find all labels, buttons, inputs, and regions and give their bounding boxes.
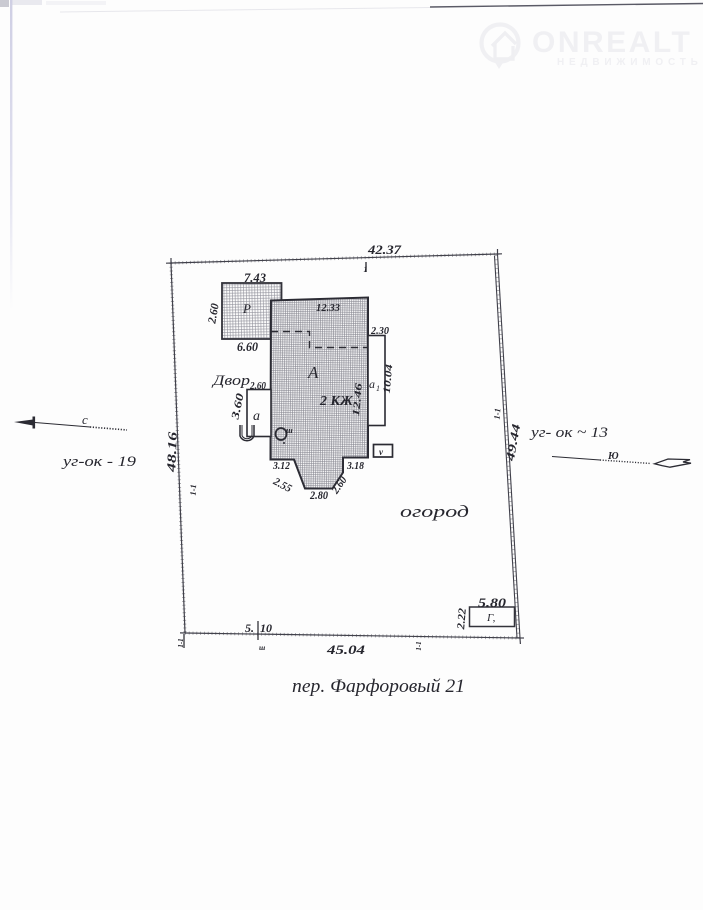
svg-text:ш: ш <box>286 426 293 435</box>
svg-text:с: с <box>82 412 88 427</box>
svg-text:12.33: 12.33 <box>316 303 340 314</box>
svg-text:2.80: 2.80 <box>309 490 328 502</box>
svg-text:45.04: 45.04 <box>326 642 366 657</box>
svg-text:6.60: 6.60 <box>237 340 259 354</box>
svg-text:2.55: 2.55 <box>270 475 294 495</box>
svg-text:5.: 5. <box>245 621 254 635</box>
svg-text:7.43: 7.43 <box>244 271 266 285</box>
svg-text:10.04: 10.04 <box>382 364 395 394</box>
svg-text:а: а <box>253 409 260 424</box>
svg-text:2.60: 2.60 <box>206 302 222 325</box>
svg-text:42.37: 42.37 <box>367 243 402 257</box>
svg-text:Ю: Ю <box>607 451 619 462</box>
svg-text:3.18: 3.18 <box>346 460 364 472</box>
svg-text:1: 1 <box>364 265 368 274</box>
svg-text:1-1: 1-1 <box>492 408 503 420</box>
svg-text:ш: ш <box>259 643 265 652</box>
svg-text:огород: огород <box>400 502 470 521</box>
svg-text:2.60: 2.60 <box>249 380 266 392</box>
svg-text:2.22: 2.22 <box>455 607 469 631</box>
svg-text:48.16: 48.16 <box>164 431 179 474</box>
svg-text:2.30: 2.30 <box>370 325 389 337</box>
svg-text:3.12: 3.12 <box>272 460 290 472</box>
svg-text:2 КЖ: 2 КЖ <box>319 394 354 409</box>
svg-text:1-1: 1-1 <box>415 641 423 650</box>
svg-text:5.80: 5.80 <box>478 596 507 610</box>
svg-text:пер. Фарфоровый 21: пер. Фарфоровый 21 <box>292 676 465 697</box>
svg-text:Двор: Двор <box>211 373 250 389</box>
svg-text:10: 10 <box>260 621 272 635</box>
svg-text:НЕДВИЖИМОСТЬ: НЕДВИЖИМОСТЬ <box>557 57 703 68</box>
svg-text:Г,: Г, <box>486 612 496 624</box>
svg-text:1-1: 1-1 <box>188 484 198 496</box>
svg-text:а: а <box>369 377 375 391</box>
svg-text:А: А <box>307 363 319 382</box>
svg-text:49.44: 49.44 <box>503 423 523 463</box>
svg-text:Р: Р <box>242 301 251 316</box>
svg-text:уг- ок ~ 13: уг- ок ~ 13 <box>529 425 608 441</box>
svg-text:1: 1 <box>376 384 380 393</box>
svg-text:ONREALT: ONREALT <box>532 26 692 59</box>
svg-text:уг-ок - 19: уг-ок - 19 <box>61 454 137 470</box>
svg-text:1-1: 1-1 <box>177 638 185 647</box>
svg-text:3.60: 3.60 <box>229 392 247 422</box>
